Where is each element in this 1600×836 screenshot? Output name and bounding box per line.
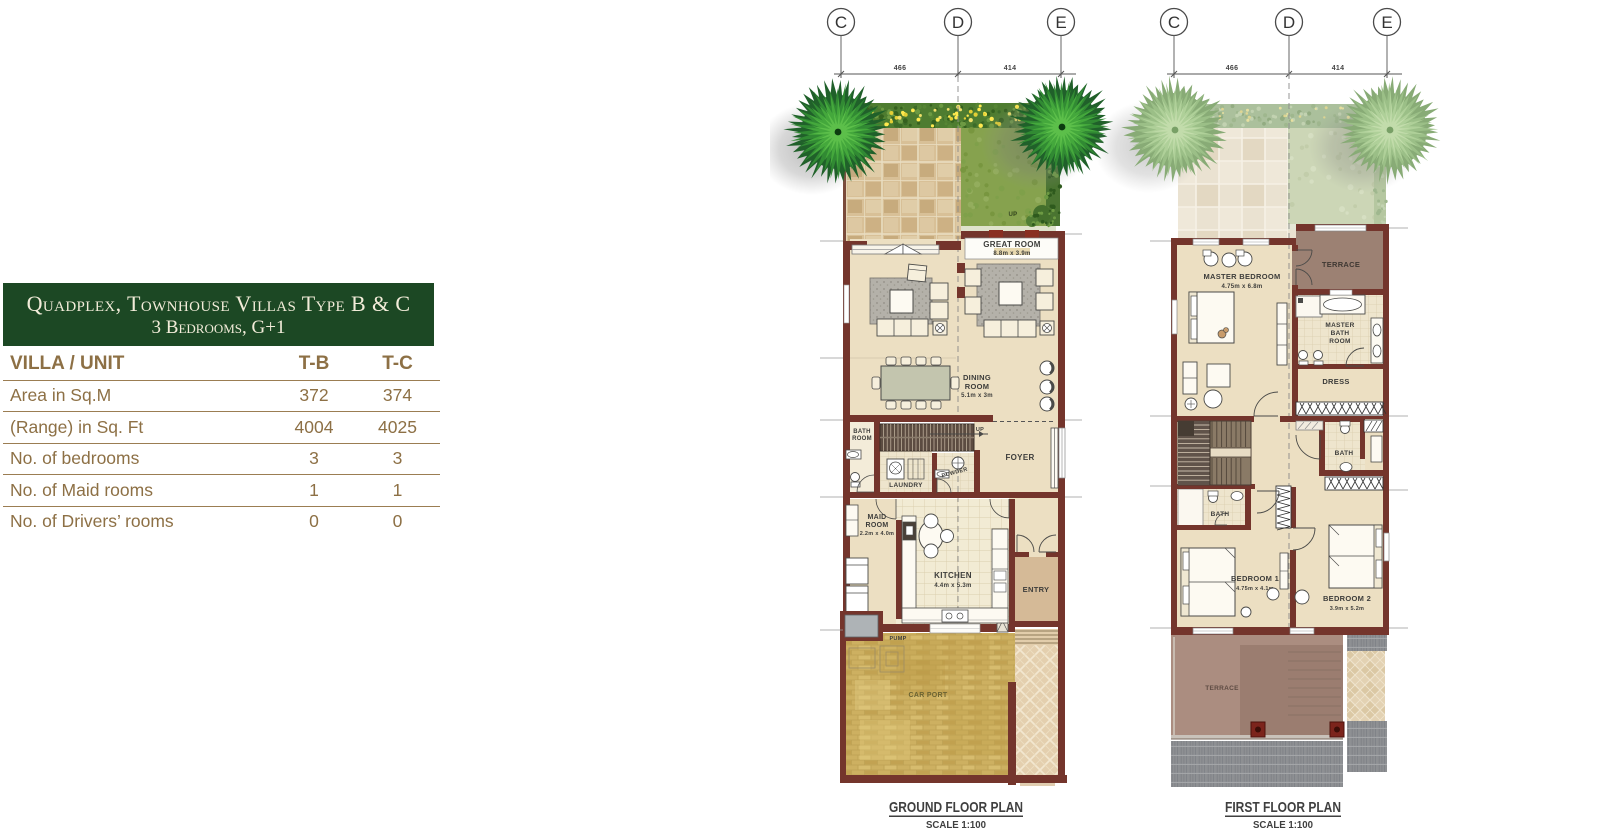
svg-text:MASTER BEDROOM: MASTER BEDROOM — [1203, 272, 1280, 281]
svg-text:2.2m x 4.0m: 2.2m x 4.0m — [860, 531, 895, 537]
svg-text:414: 414 — [1004, 65, 1017, 72]
svg-text:466: 466 — [1226, 65, 1239, 72]
svg-text:GREAT ROOM: GREAT ROOM — [983, 240, 1041, 249]
svg-text:C: C — [835, 13, 847, 32]
svg-text:C: C — [1168, 13, 1180, 32]
svg-text:3.9m x 5.2m: 3.9m x 5.2m — [1330, 606, 1365, 612]
svg-text:8.8m x 3.9m: 8.8m x 3.9m — [993, 251, 1030, 257]
svg-text:PUMP: PUMP — [889, 636, 906, 642]
svg-text:DRESS: DRESS — [1322, 377, 1349, 386]
svg-text:E: E — [1381, 13, 1392, 32]
svg-text:414: 414 — [1332, 65, 1345, 72]
svg-text:DINING: DINING — [963, 373, 991, 382]
svg-text:ENTRY: ENTRY — [1023, 585, 1050, 594]
svg-text:BATH: BATH — [1335, 450, 1354, 457]
svg-text:466: 466 — [894, 65, 907, 72]
svg-text:FIRST FLOOR PLAN: FIRST FLOOR PLAN — [1225, 799, 1341, 816]
svg-text:UP: UP — [976, 427, 984, 433]
svg-text:D: D — [952, 13, 964, 32]
svg-text:BEDROOM 1: BEDROOM 1 — [1231, 574, 1279, 583]
svg-text:SCALE 1:100: SCALE 1:100 — [926, 819, 986, 831]
svg-text:BATH: BATH — [853, 429, 870, 435]
svg-text:FOYER: FOYER — [1005, 453, 1034, 462]
svg-text:4.75m x 6.8m: 4.75m x 6.8m — [1222, 284, 1263, 290]
svg-text:GROUND FLOOR PLAN: GROUND FLOOR PLAN — [889, 799, 1023, 816]
svg-text:BATH: BATH — [1211, 511, 1230, 518]
svg-text:BATH: BATH — [1331, 330, 1350, 337]
svg-text:ROOM: ROOM — [965, 382, 990, 391]
svg-text:ROOM: ROOM — [866, 522, 889, 529]
svg-text:CAR PORT: CAR PORT — [909, 692, 948, 699]
svg-text:UP: UP — [1009, 212, 1018, 218]
svg-text:4.4m x 5.3m: 4.4m x 5.3m — [934, 583, 971, 589]
svg-text:ROOM: ROOM — [852, 436, 872, 442]
svg-text:TERRACE: TERRACE — [1322, 260, 1360, 269]
svg-text:LAUNDRY: LAUNDRY — [889, 482, 923, 489]
svg-text:ROOM: ROOM — [1329, 338, 1350, 345]
svg-text:KITCHEN: KITCHEN — [934, 571, 972, 580]
svg-text:MASTER: MASTER — [1325, 322, 1354, 329]
svg-text:E: E — [1055, 13, 1066, 32]
svg-text:TERRACE: TERRACE — [1205, 685, 1239, 692]
svg-text:D: D — [1283, 13, 1295, 32]
svg-text:5.1m x 3m: 5.1m x 3m — [961, 393, 993, 399]
svg-text:SCALE 1:100: SCALE 1:100 — [1253, 819, 1313, 831]
svg-text:BEDROOM 2: BEDROOM 2 — [1323, 594, 1371, 603]
